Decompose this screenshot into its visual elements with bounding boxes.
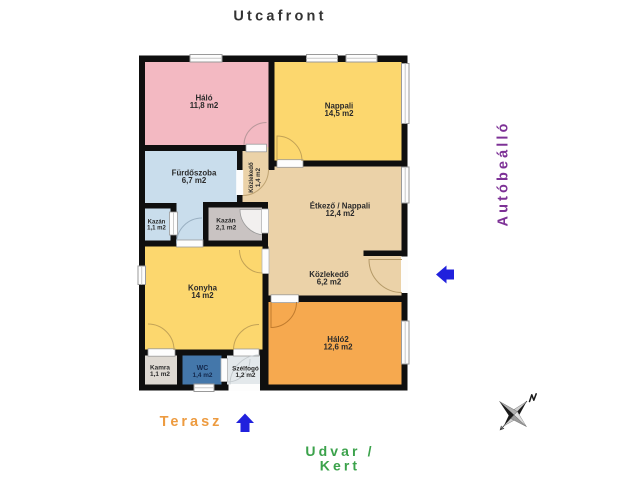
- svg-text:6,7 m2: 6,7 m2: [182, 176, 207, 185]
- svg-text:1,1 m2: 1,1 m2: [147, 226, 166, 232]
- svg-text:6,2 m2: 6,2 m2: [317, 278, 342, 287]
- svg-text:Közlekedő: Közlekedő: [248, 162, 255, 193]
- svg-text:12,6 m2: 12,6 m2: [324, 343, 354, 352]
- svg-text:1,4 m2: 1,4 m2: [255, 167, 262, 187]
- svg-text:12,4 m2: 12,4 m2: [326, 209, 356, 218]
- svg-text:14,5 m2: 14,5 m2: [325, 109, 355, 118]
- svg-text:WC: WC: [197, 365, 209, 372]
- svg-text:Kazán: Kazán: [216, 218, 235, 225]
- svg-text:Autóbeálló: Autóbeálló: [496, 121, 512, 227]
- svg-text:Terasz: Terasz: [160, 414, 223, 430]
- svg-text:Utcafront: Utcafront: [233, 9, 326, 25]
- svg-text:1,4 m2: 1,4 m2: [193, 372, 213, 379]
- svg-text:1,2 m2: 1,2 m2: [236, 372, 256, 379]
- svg-text:1,1 m2: 1,1 m2: [150, 371, 170, 378]
- svg-text:11,8 m2: 11,8 m2: [190, 101, 219, 110]
- svg-text:Kert: Kert: [320, 458, 360, 474]
- svg-text:14 m2: 14 m2: [191, 291, 214, 300]
- svg-text:2,1 m2: 2,1 m2: [216, 225, 237, 232]
